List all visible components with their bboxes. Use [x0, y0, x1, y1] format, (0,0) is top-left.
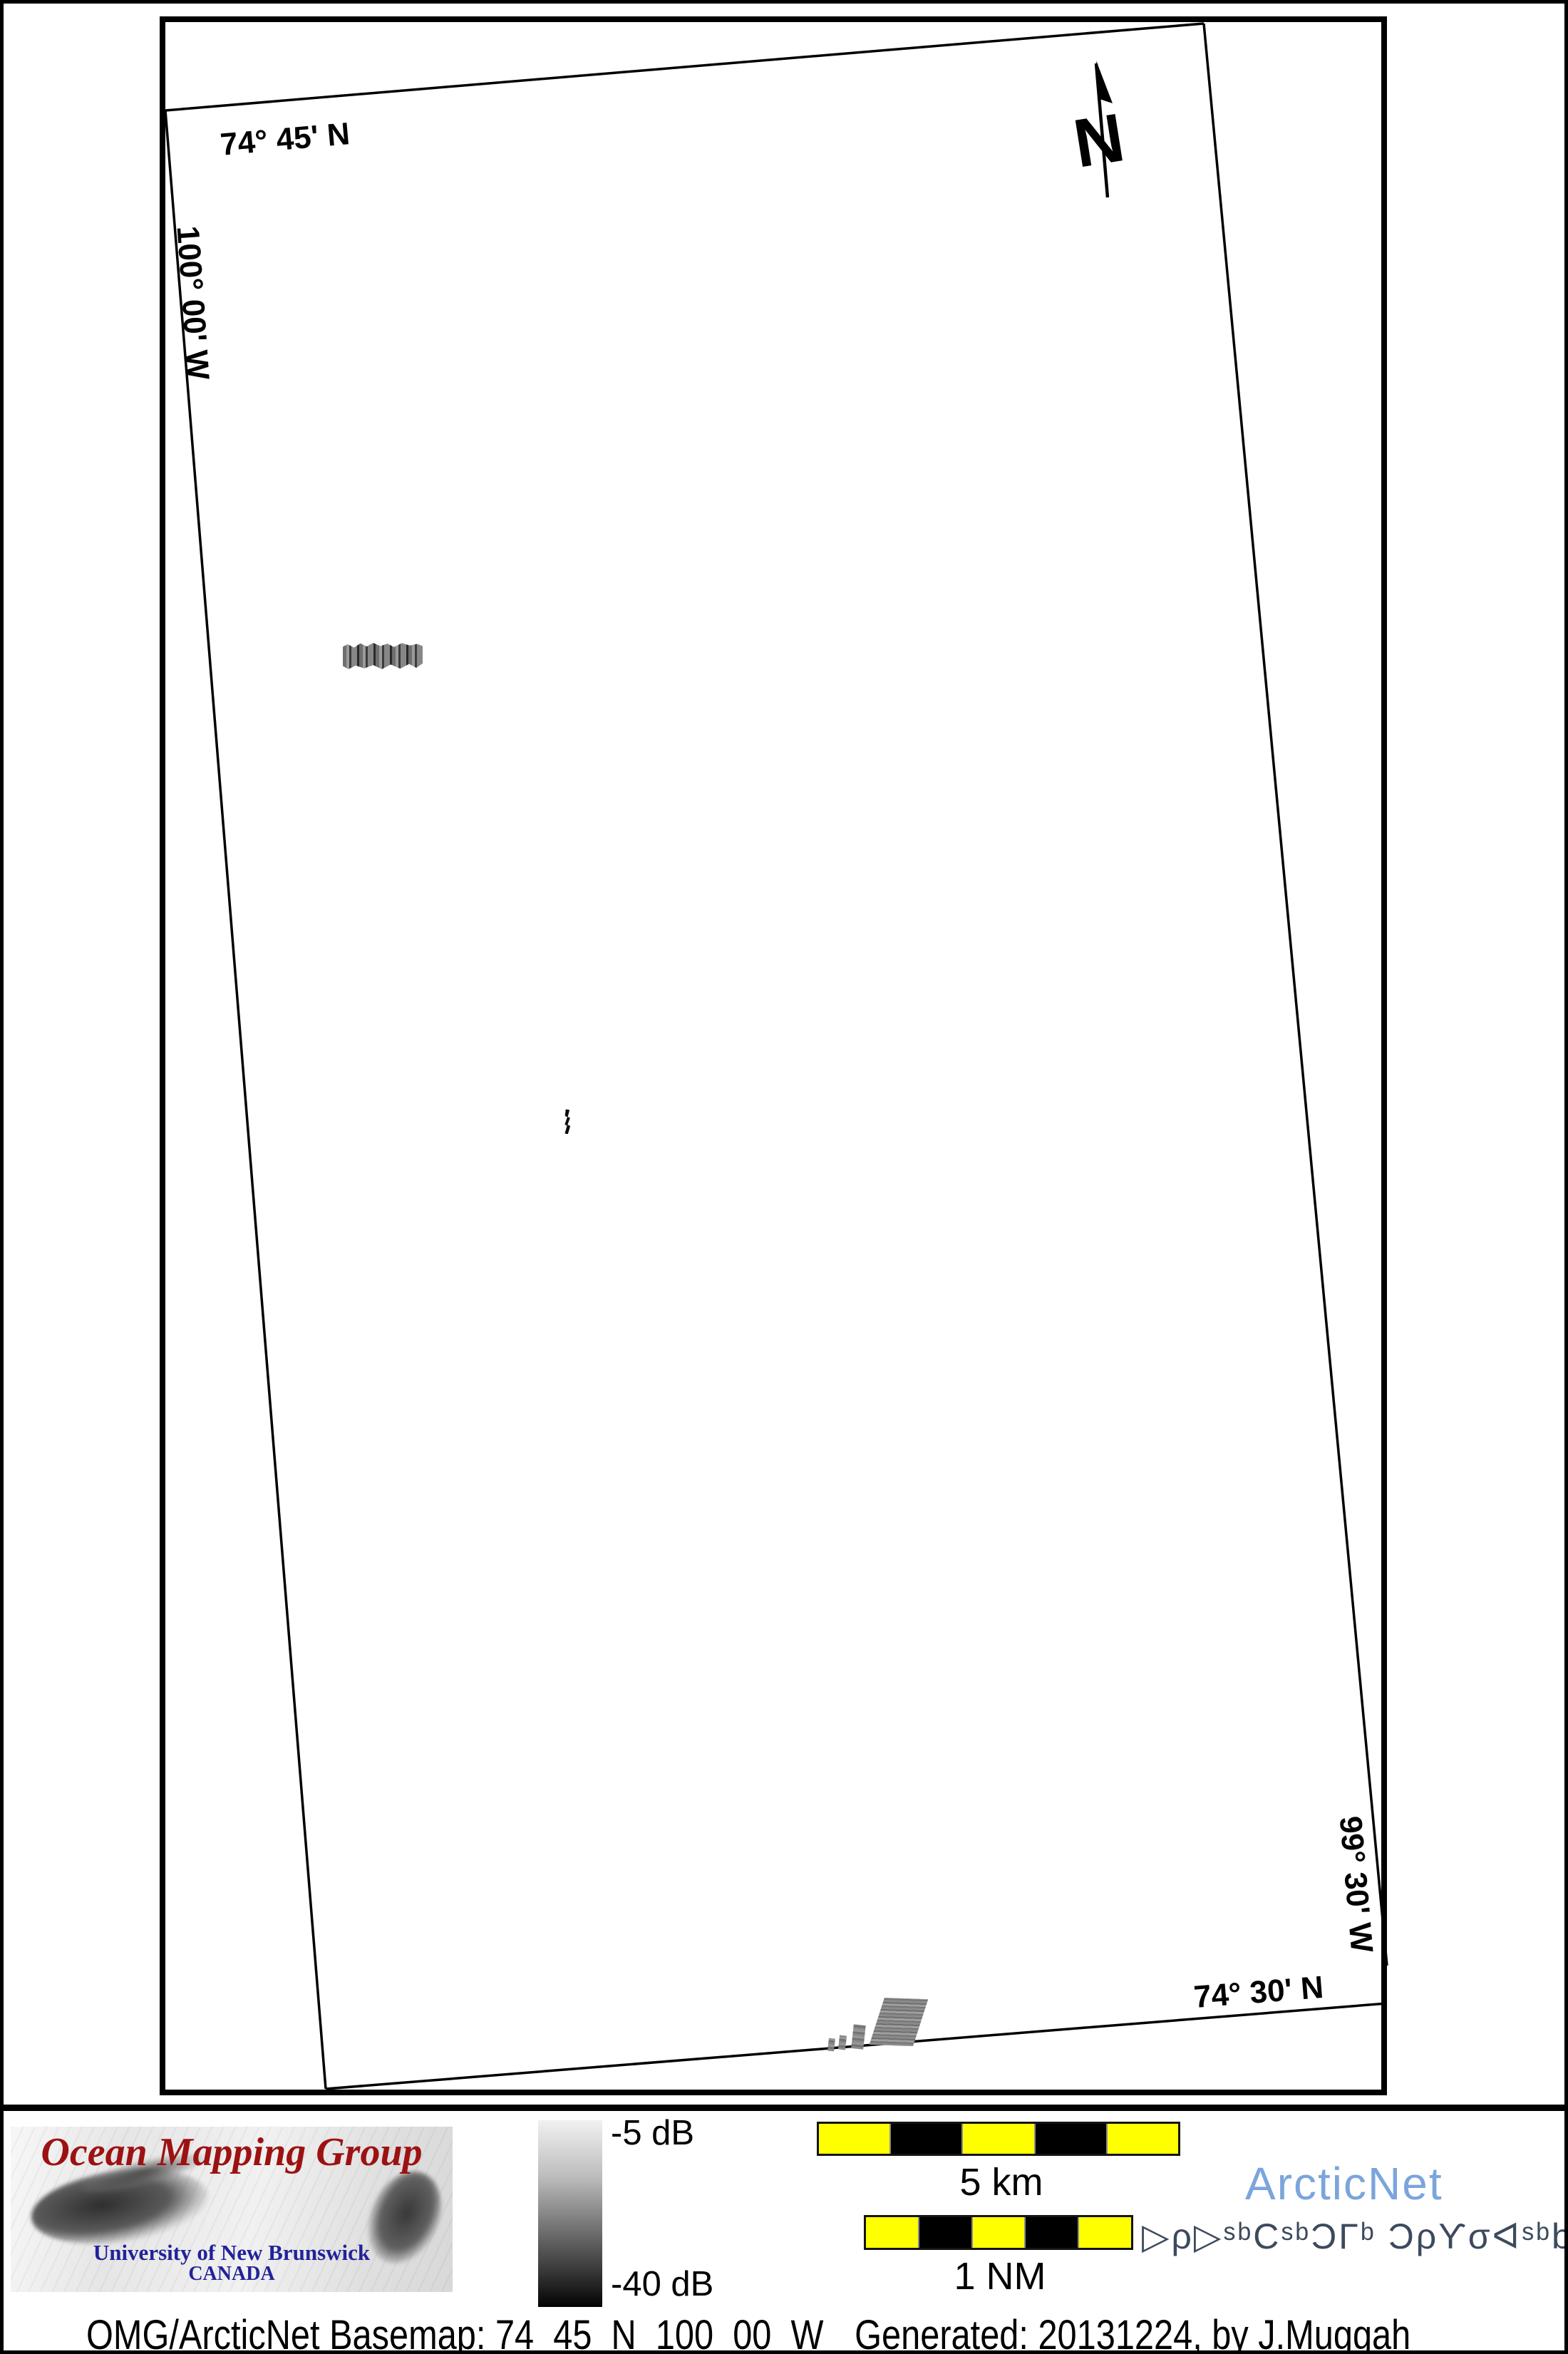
backscatter-strip: [838, 2035, 847, 2050]
backscatter-colorbar: [538, 2120, 602, 2307]
scalebar-segment: [819, 2124, 889, 2154]
backscatter-strip: [851, 2024, 865, 2050]
scalebar-segment: [866, 2217, 918, 2248]
scalebar-segment: [1106, 2124, 1178, 2154]
scalebar-segment: [1078, 2217, 1131, 2248]
footer-divider: [4, 2105, 1568, 2111]
arcticnet-inuktitut-name: ▷ρ▷ˢᵇCˢᵇƆΓᵇ Ɔρϒσᐊˢᵇb∩Γ̇ᶜ: [1142, 2216, 1568, 2257]
caption-basemap: OMG/ArcticNet Basemap: 74_45_N_100_00_W: [86, 2311, 823, 2354]
arcticnet-wordmark: ArcticNet: [1245, 2157, 1443, 2210]
scalebar-nm: [864, 2215, 1133, 2250]
colorbar-min-label: -40 dB: [611, 2264, 713, 2304]
caption-generated: Generated: 20131224, by J.Muggah: [855, 2311, 1410, 2354]
backscatter-strip: [827, 2038, 835, 2052]
omg-logo-title: Ocean Mapping Group: [41, 2130, 422, 2175]
scalebar-km: [817, 2122, 1180, 2156]
map-frame: [160, 16, 1387, 2095]
scalebar-segment: [1034, 2124, 1106, 2154]
basemap-sheet: 74° 45' N 100° 00' W 99° 30' W 74° 30' N…: [0, 0, 1568, 2354]
omg-logo-country: CANADA: [188, 2263, 274, 2286]
scalebar-segment: [889, 2124, 961, 2154]
omg-logo-subtitle: University of New Brunswick: [93, 2240, 370, 2266]
caption-line: OMG/ArcticNet Basemap: 74_45_N_100_00_W …: [86, 2311, 1410, 2354]
scalebar-segment: [1024, 2217, 1078, 2248]
scalebar-segment: [961, 2124, 1033, 2154]
colorbar-max-label: -5 dB: [611, 2113, 694, 2153]
scalebar-segment: [971, 2217, 1025, 2248]
omg-logo: Ocean Mapping Group University of New Br…: [11, 2127, 453, 2292]
scalebar-km-label: 5 km: [959, 2160, 1043, 2204]
scalebar-nm-label: 1 NM: [954, 2254, 1046, 2298]
scalebar-segment: [918, 2217, 971, 2248]
